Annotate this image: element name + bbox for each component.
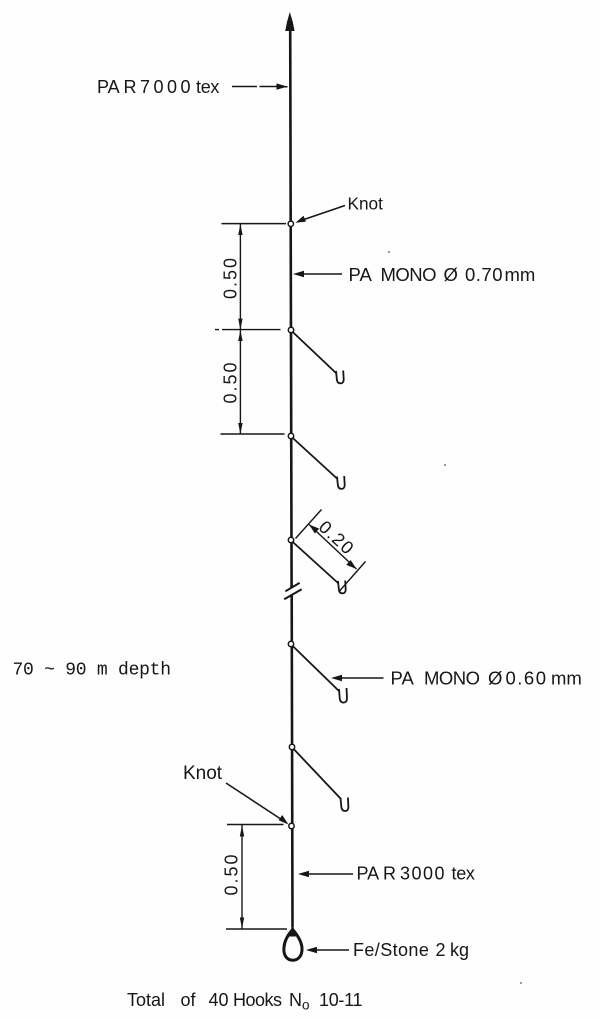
svg-text:Knot: Knot [183, 763, 223, 784]
svg-text:Knot: Knot [348, 194, 384, 214]
svg-text:70 ~ 90 m depth: 70 ~ 90 m depth [13, 661, 171, 681]
svg-text:PAR7000tex: PAR7000tex [97, 77, 219, 97]
svg-text:PAR3000tex: PAR3000tex [357, 864, 475, 884]
svg-text:0.50: 0.50 [221, 256, 241, 299]
svg-text:Fe/Stone2kg: Fe/Stone2kg [353, 940, 469, 960]
svg-text:0.50: 0.50 [222, 852, 242, 895]
svg-text:Totalof40HooksNo10-11: Totalof40HooksNo10-11 [127, 990, 362, 1013]
svg-text:0.50: 0.50 [221, 360, 241, 403]
